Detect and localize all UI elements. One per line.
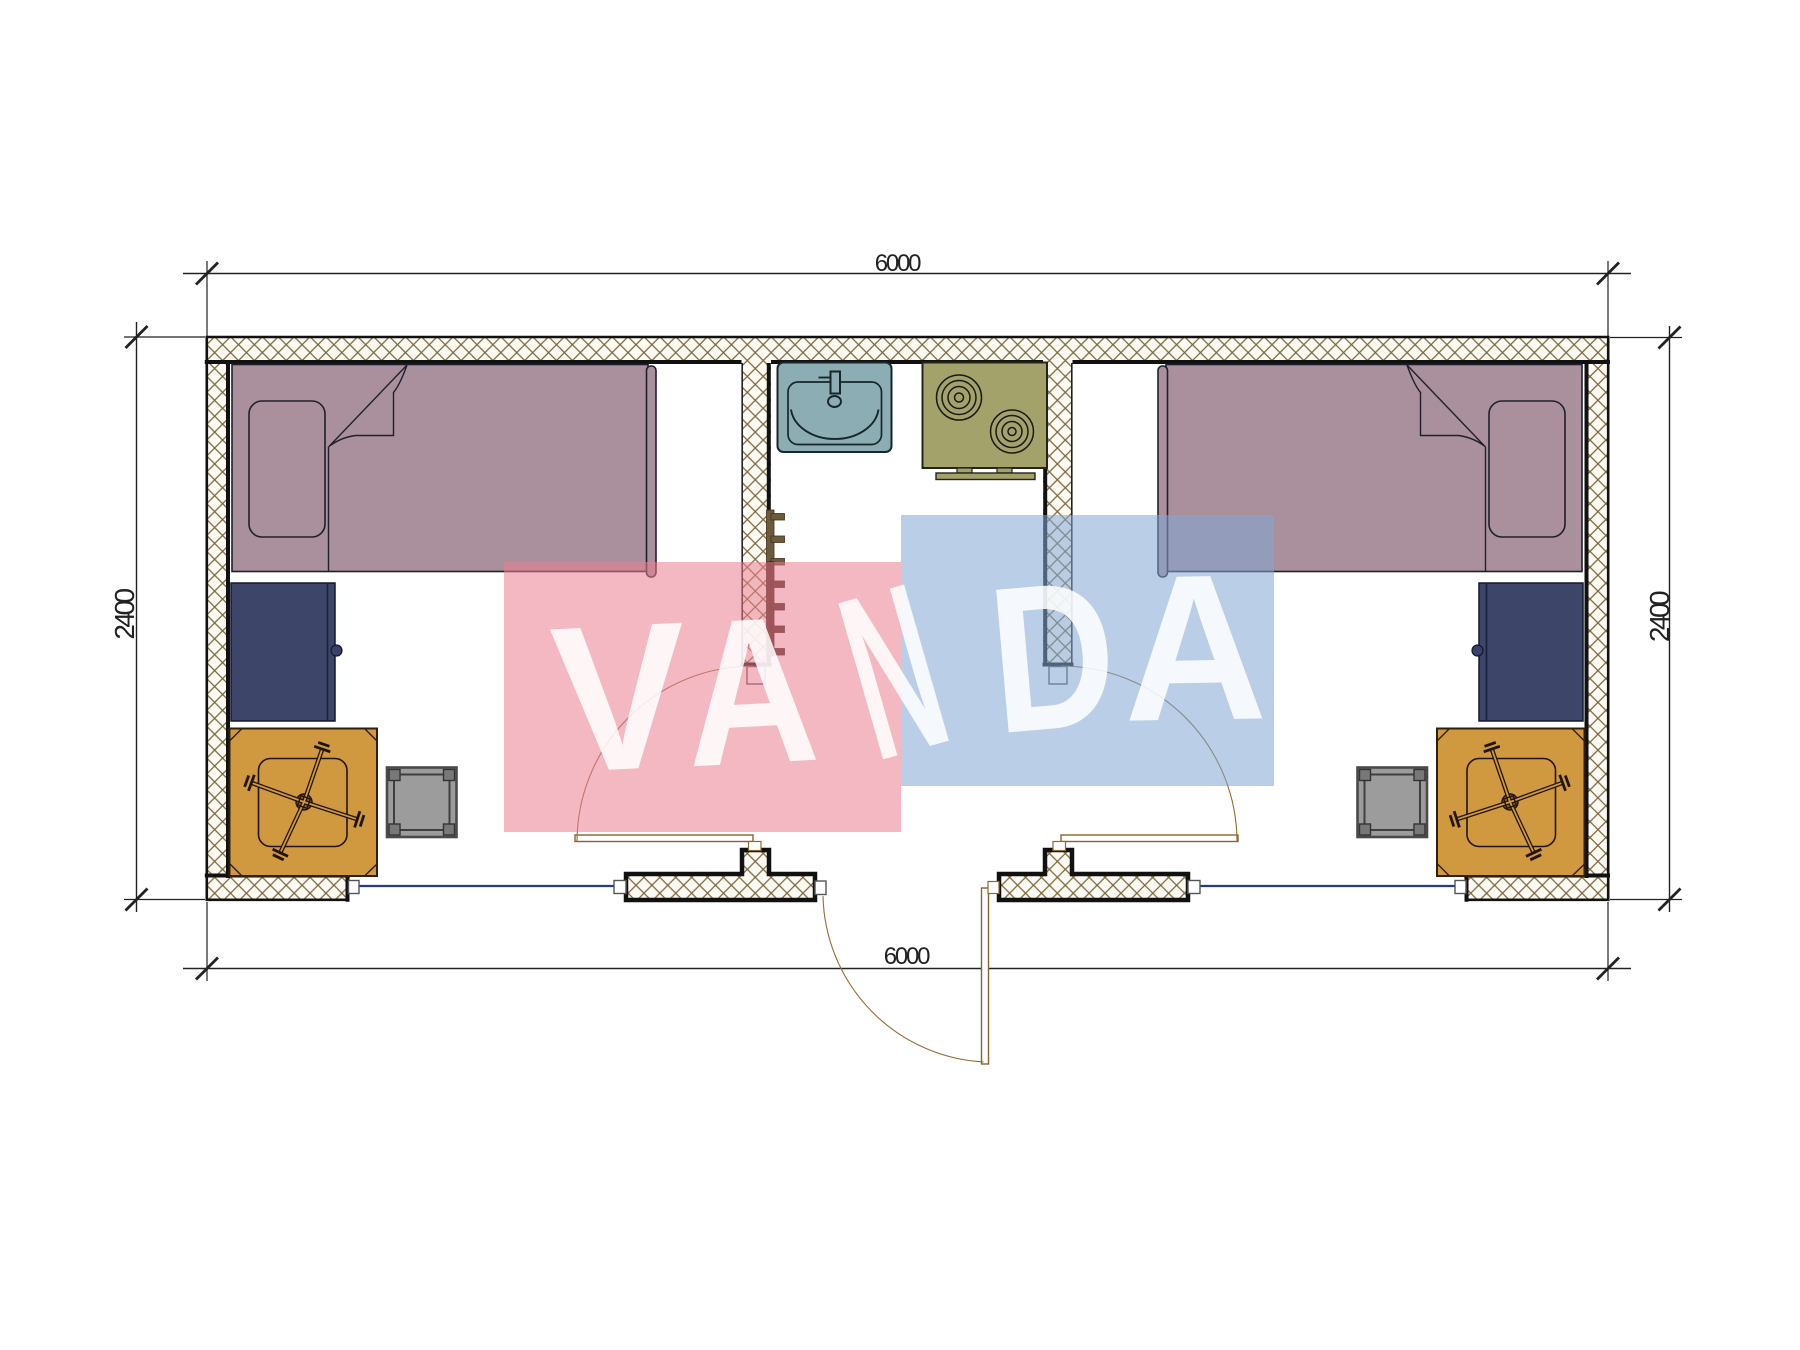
svg-text:2400: 2400 (1644, 591, 1675, 642)
svg-text:D: D (981, 536, 1125, 778)
svg-text:2400: 2400 (109, 588, 140, 639)
svg-text:6000: 6000 (875, 250, 921, 277)
svg-text:A: A (679, 573, 823, 812)
svg-text:6000: 6000 (884, 943, 930, 970)
svg-text:A: A (1121, 531, 1268, 765)
svg-text:V: V (546, 579, 693, 818)
